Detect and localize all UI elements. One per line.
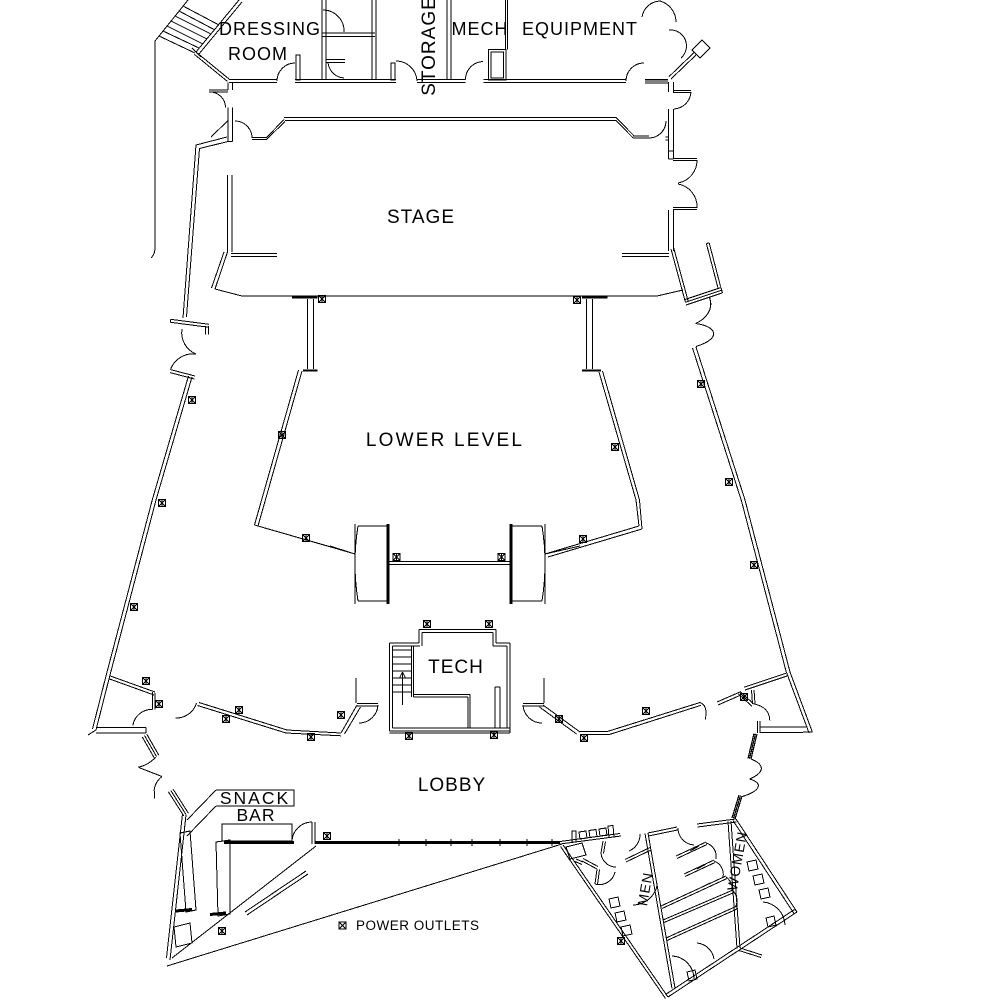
- svg-text:ROOM: ROOM: [228, 44, 288, 64]
- svg-text:LOWER LEVEL: LOWER LEVEL: [366, 430, 524, 451]
- svg-text:LOBBY: LOBBY: [418, 775, 486, 796]
- svg-text:MECH: MECH: [452, 19, 509, 39]
- svg-text:TECH: TECH: [428, 657, 484, 678]
- svg-text:STAGE: STAGE: [387, 207, 455, 228]
- svg-text:POWER OUTLETS: POWER OUTLETS: [356, 918, 480, 933]
- svg-text:BAR: BAR: [237, 805, 276, 825]
- svg-text:EQUIPMENT: EQUIPMENT: [522, 19, 638, 39]
- svg-text:STORAGE: STORAGE: [419, 0, 440, 96]
- svg-text:DRESSING: DRESSING: [219, 19, 321, 39]
